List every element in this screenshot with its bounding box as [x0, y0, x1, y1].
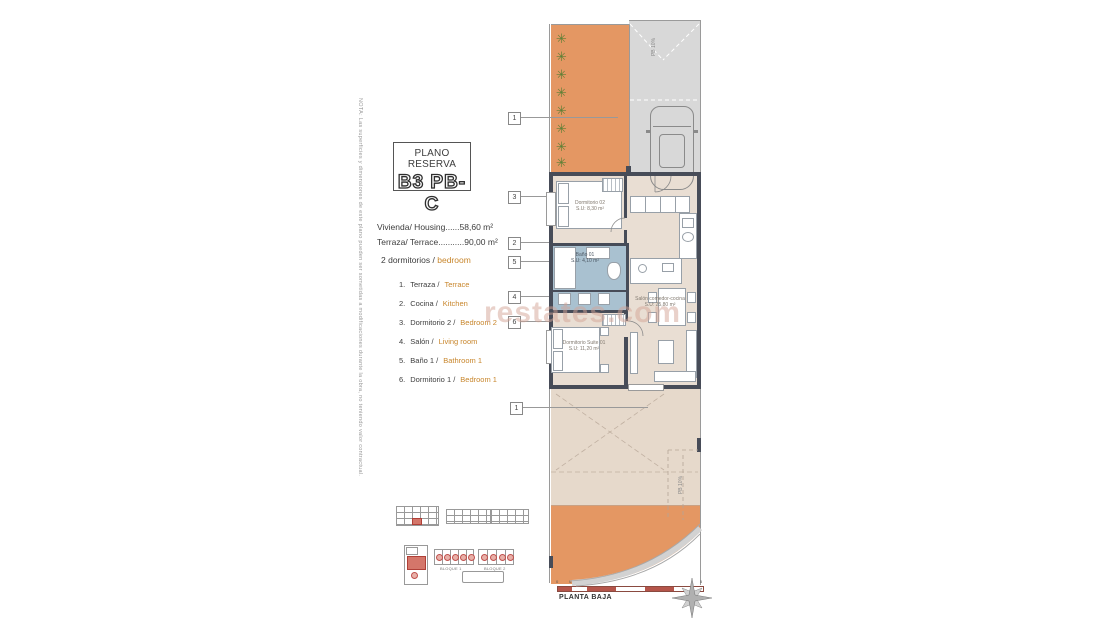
- legend-item-salon: 4. Salón / Living room: [399, 337, 497, 356]
- legend-item-dormitorio1: 6. Dormitorio 1 / Bedroom 1: [399, 375, 497, 394]
- legend-item-terraza: 1. Terraza / Terrace: [399, 280, 497, 299]
- plant-icon: ✳: [556, 122, 567, 135]
- scale-tick: 2: [613, 579, 615, 584]
- window-bedroom2: [546, 192, 556, 226]
- garden-top-line: [551, 505, 700, 506]
- ramp-label-top: PB 10%: [651, 38, 657, 56]
- keyplan-unit-dot: [499, 554, 506, 561]
- island-hob: [662, 263, 674, 272]
- floorplan-sheet: NOTA: Las superficies y dimensiones de e…: [0, 0, 1110, 626]
- wall-hall-bed2-a: [624, 176, 627, 218]
- garden-fill: [551, 505, 700, 584]
- callout-dormitorio2: 3: [508, 191, 521, 204]
- keyplan-unit-dot: [481, 554, 488, 561]
- keyplan-block2-label: BLOQUE 2: [484, 566, 506, 571]
- plant-icon: ✳: [556, 68, 567, 81]
- leader-line: [521, 196, 549, 197]
- floor-name: PLANTA BAJA: [559, 594, 612, 601]
- unit-code: B3 PB-C: [394, 172, 470, 216]
- kitchen-counter-top: [630, 196, 690, 213]
- dining-chair: [687, 312, 696, 323]
- wall-stub-terrace-right: [697, 438, 701, 452]
- car-mirror-left: [646, 130, 651, 133]
- legend-item-bano1: 5. Baño 1 / Bathroom 1: [399, 356, 497, 375]
- scale-tick: 4: [671, 579, 673, 584]
- wall-right: [697, 172, 701, 389]
- keyplan-highlight-unit: [407, 556, 426, 570]
- keyplan-unit-dot: [444, 554, 451, 561]
- sofa-horizontal: [654, 371, 696, 382]
- callout-terraza-bottom: 1: [510, 402, 523, 415]
- scale-bar: [557, 586, 704, 592]
- wall-bed2-bath: [549, 243, 628, 246]
- keyplan-unit-dot: [490, 554, 497, 561]
- terrace-sliding-door: [628, 384, 664, 391]
- leader-line: [521, 117, 618, 118]
- wall-stub-bottom-left: [549, 556, 553, 568]
- wall-hall-bed2-b: [624, 230, 627, 243]
- car-roof: [659, 134, 685, 168]
- scale-tick: 0.5: [569, 579, 575, 584]
- plot-left-line-lower: [549, 389, 550, 583]
- bed2-closet: [602, 178, 623, 192]
- callout-cocina: 2: [508, 237, 521, 250]
- ramp-label-bottom: PB 10%: [678, 476, 684, 494]
- leader-line: [523, 407, 648, 408]
- scale-tick: 3: [642, 579, 644, 584]
- plan-title-box: PLANO RESERVA B3 PB-C: [393, 142, 471, 191]
- plant-icon: ✳: [556, 156, 567, 169]
- suite-label: Dormitorio Suite 01 S.U: 11,20 m²: [554, 340, 614, 352]
- kitchen-sink: [682, 232, 694, 242]
- wall-stub-driveway: [626, 166, 631, 176]
- scale-tick: 0: [556, 579, 558, 584]
- callout-bano1: 5: [508, 256, 521, 269]
- plan-title: PLANO RESERVA: [394, 148, 470, 170]
- suite-nightstand: [600, 364, 609, 373]
- plot-left-line: [549, 24, 550, 172]
- legend-item-dormitorio2: 3. Dormitorio 2 / Bedroom 2: [399, 318, 497, 337]
- plant-icon: ✳: [556, 86, 567, 99]
- plot-top-line-terrace: [551, 24, 629, 25]
- keyplan-building-left-top: [406, 547, 418, 555]
- kitchen-oven: [682, 218, 694, 228]
- callout-terraza-top: 1: [508, 112, 521, 125]
- legal-note-vertical: NOTA: Las superficies y dimensiones de e…: [357, 98, 363, 522]
- leader-line: [521, 242, 549, 243]
- toilet: [607, 262, 621, 280]
- keyplan-unit-dot: [436, 554, 443, 561]
- wall-suite-salon-b: [624, 337, 628, 385]
- keyplan-unit-dot: [411, 572, 418, 579]
- housing-area: Vivienda/ Housing......58,60 m²: [377, 220, 498, 235]
- island-sink: [638, 264, 647, 273]
- legend-item-cocina: 2. Cocina / Kitchen: [399, 299, 497, 318]
- keyplan-unit-dot: [468, 554, 475, 561]
- terrace-area: Terraza/ Terrace...........90,00 m²: [377, 235, 498, 250]
- leader-line: [521, 261, 549, 262]
- plant-icon: ✳: [556, 50, 567, 63]
- terrace-driveway-divider: [629, 24, 630, 172]
- tv-unit: [630, 332, 638, 374]
- keyplan-unit-table-2: [446, 509, 491, 524]
- keyplan-block1-label: BLOQUE 1: [440, 566, 462, 571]
- bathroom1-label: Baño 01 S.U: 4,10 m²: [556, 252, 614, 264]
- scale-tick: 5: [700, 579, 702, 584]
- bedroom2-label: Dormitorio 02 S.U: 8,30 m²: [558, 200, 622, 212]
- scale-tick: 1: [584, 579, 586, 584]
- wall-bottom: [549, 385, 701, 389]
- plot-top-line-driveway: [629, 20, 700, 21]
- suite-pillow: [553, 351, 563, 371]
- plant-icon: ✳: [556, 32, 567, 45]
- keyplan-pool: [462, 571, 504, 583]
- room-legend: 1. Terraza / Terrace 2. Cocina / Kitchen…: [399, 280, 497, 394]
- bedroom-count: 2 dormitorios / bedroom: [381, 255, 471, 265]
- coffee-table: [658, 340, 674, 364]
- car-mirror-right: [693, 130, 698, 133]
- wall-bath-bath2: [549, 290, 628, 292]
- keyplan-unit-dot: [507, 554, 514, 561]
- keyplan-unit-dot: [460, 554, 467, 561]
- keyplan-unit-table-3: [491, 509, 529, 524]
- plant-icon: ✳: [556, 140, 567, 153]
- keyplan-unit-dot: [452, 554, 459, 561]
- area-summary: Vivienda/ Housing......58,60 m² Terraza/…: [377, 220, 498, 250]
- plant-icon: ✳: [556, 104, 567, 117]
- watermark: restates.com: [484, 296, 681, 330]
- car-windshield-line: [653, 126, 691, 127]
- keyplan-highlight-cell: [412, 518, 422, 525]
